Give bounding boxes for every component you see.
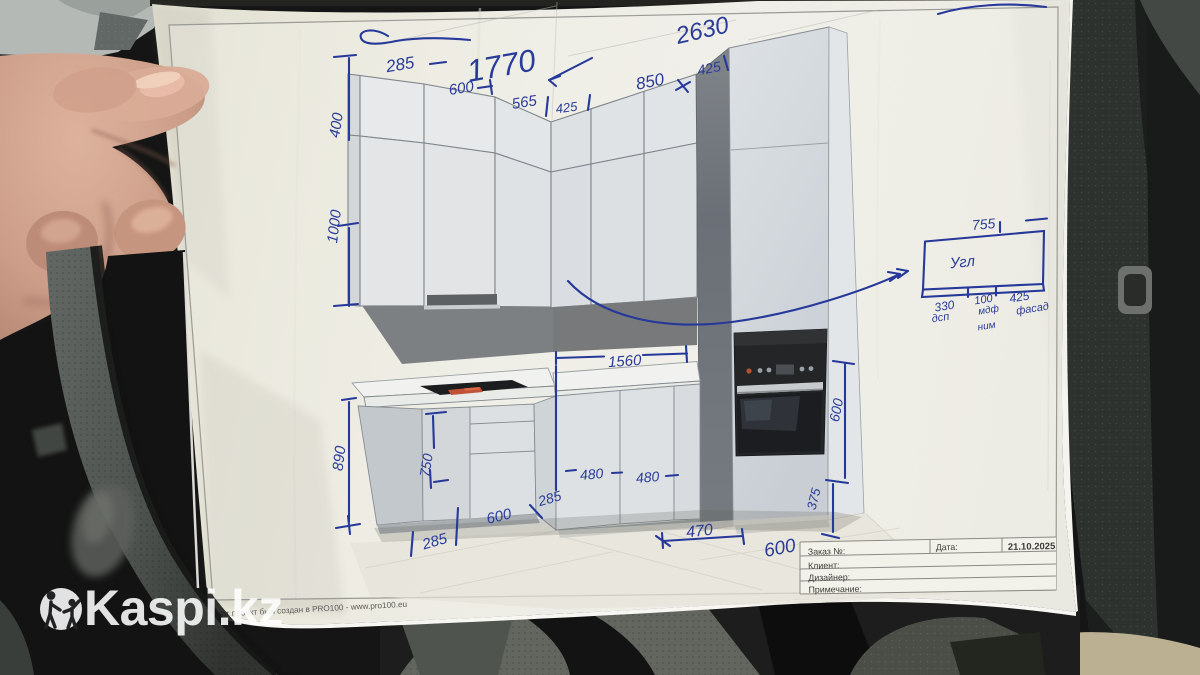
svg-text:890: 890 [330,444,350,472]
svg-text:Kaspi.kz: Kaspi.kz [84,580,283,636]
svg-text:425: 425 [555,99,579,117]
svg-text:Клиент:: Клиент: [808,560,840,571]
svg-text:Заказ №:: Заказ №: [808,546,846,557]
svg-text:755: 755 [971,215,996,233]
svg-text:470: 470 [685,522,713,542]
svg-text:Угл: Угл [948,253,976,273]
svg-text:Дата:: Дата: [936,542,958,552]
svg-text:1560: 1560 [607,352,642,371]
svg-text:Примечание:: Примечание: [808,584,862,595]
svg-text:21.10.2025: 21.10.2025 [1008,541,1056,553]
svg-text:480: 480 [579,465,604,483]
svg-text:Дизайнер:: Дизайнер: [808,572,850,583]
svg-text:480: 480 [635,468,660,486]
